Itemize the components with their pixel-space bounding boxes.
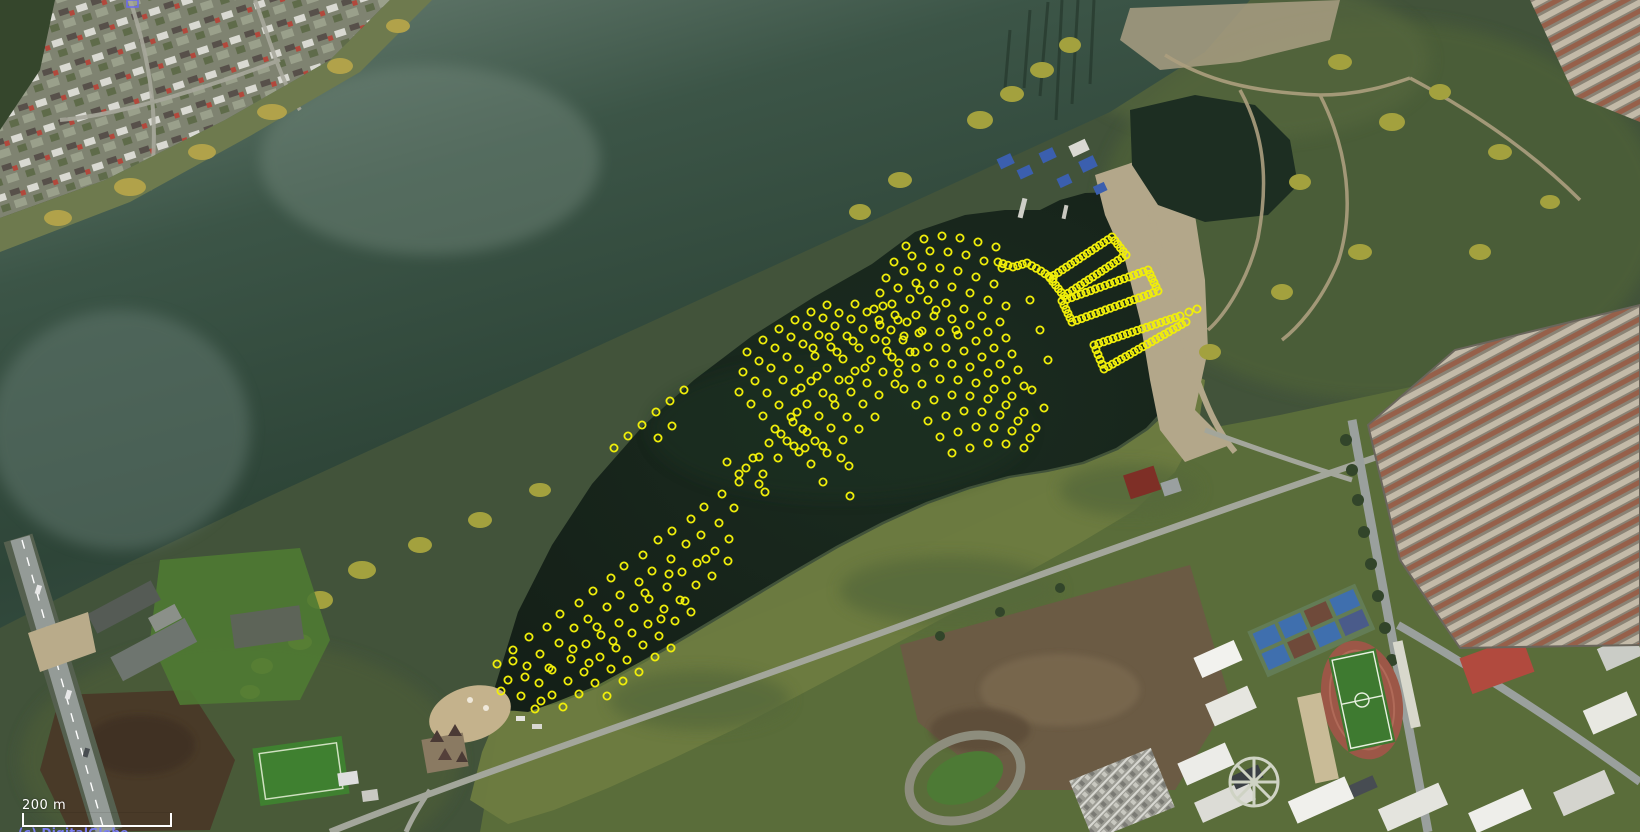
survey-marker [803,322,810,329]
survey-marker [1008,350,1015,357]
survey-marker [930,396,937,403]
survey-marker [755,480,762,487]
survey-marker [882,274,889,281]
survey-marker [972,379,979,386]
survey-marker [1026,296,1033,303]
survey-marker [960,305,967,312]
survey-marker [1008,392,1015,399]
survey-marker [569,645,576,652]
survey-marker [593,623,600,630]
survey-marker [948,360,955,367]
survey-marker [700,503,707,510]
survey-marker [667,555,674,562]
survey-marker [759,470,766,477]
survey-marker [635,578,642,585]
survey-marker [920,235,927,242]
survey-marker [861,364,868,371]
survey-marker [771,425,778,432]
survey-marker [555,639,562,646]
survey-marker [942,412,949,419]
survey-marker [504,676,511,683]
survey-marker [948,391,955,398]
survey-marker [1044,356,1051,363]
survey-marker [797,384,804,391]
survey-marker [761,488,768,495]
survey-marker [639,551,646,558]
survey-marker [725,535,732,542]
survey-marker [972,273,979,280]
survey-marker [936,264,943,271]
survey-marker [966,321,973,328]
survey-marker [584,615,591,622]
survey-marker [638,421,645,428]
survey-marker [612,644,619,651]
survey-marker [984,296,991,303]
survey-marker [954,267,961,274]
survey-marker [807,308,814,315]
survey-marker [984,395,991,402]
survey-marker [948,449,955,456]
survey-marker [687,515,694,522]
survey-marker [996,411,1003,418]
survey-marker [833,348,840,355]
survey-marker [623,656,630,663]
survey-marker [775,401,782,408]
survey-marker [839,355,846,362]
survey-marker [936,328,943,335]
survey-marker [924,296,931,303]
survey-marker [888,300,895,307]
survey-marker [936,375,943,382]
survey-marker [702,555,709,562]
survey-marker [906,295,913,302]
survey-marker [630,604,637,611]
survey-marker [1020,444,1027,451]
survey-marker [819,389,826,396]
survey-marker [535,679,542,686]
survey-marker [615,619,622,626]
survey-marker [845,376,852,383]
survey-marker [693,559,700,566]
survey-marker [867,356,874,363]
survey-marker [620,562,627,569]
survey-marker [978,408,985,415]
survey-marker [1036,326,1043,333]
survey-marker [823,301,830,308]
survey-marker [813,372,820,379]
survey-marker [723,458,730,465]
survey-marker [876,321,883,328]
map-attribution: (c) DigitalGlobe [18,826,129,832]
survey-marker [906,348,913,355]
survey-marker [624,432,631,439]
survey-marker [641,589,648,596]
survey-marker [682,540,689,547]
survey-marker [900,267,907,274]
survey-marker [835,309,842,316]
survey-marker [678,568,685,575]
survey-marker [531,705,538,712]
survey-marker [837,454,844,461]
survey-marker [815,331,822,338]
survey-marker [711,547,718,554]
survey-marker [870,305,877,312]
survey-marker [521,673,528,680]
survey-marker [666,397,673,404]
survey-marker [990,385,997,392]
survey-marker [954,428,961,435]
survey-marker [743,348,750,355]
survey-marker [525,633,532,640]
survey-marker [960,347,967,354]
survey-marker [819,442,826,449]
survey-marker [783,353,790,360]
survey-marker [771,344,778,351]
survey-marker [912,364,919,371]
scale-bar: 200 m [22,799,172,827]
survey-marker [900,385,907,392]
survey-marker [791,316,798,323]
survey-marker [564,677,571,684]
survey-marker [763,389,770,396]
survey-marker [1002,376,1009,383]
survey-marker [644,620,651,627]
survey-marker [735,478,742,485]
survey-marker [765,439,772,446]
survey-marker [1002,334,1009,341]
survey-marker [575,599,582,606]
survey-marker [751,377,758,384]
survey-marker [823,364,830,371]
survey-marker [809,344,816,351]
survey-marker [827,424,834,431]
survey-marker [992,243,999,250]
survey-marker [811,352,818,359]
survey-marker [735,388,742,395]
survey-marker [966,363,973,370]
survey-marker [739,368,746,375]
survey-marker [984,439,991,446]
survey-marker [962,251,969,258]
survey-marker [894,369,901,376]
survey-marker [996,360,1003,367]
survey-marker [509,657,516,664]
survey-marker [591,679,598,686]
survey-marker [654,434,661,441]
survey-marker [663,583,670,590]
survey-marker [654,536,661,543]
survey-marker [724,557,731,564]
survey-marker [657,615,664,622]
survey-marker [665,570,672,577]
survey-marker [936,433,943,440]
survey-marker [823,449,830,456]
survey-marker [635,668,642,675]
survey-marker [966,289,973,296]
survey-marker [954,376,961,383]
survey-marker [855,425,862,432]
survey-marker [668,527,675,534]
survey-marker [523,662,530,669]
survey-marker [855,344,862,351]
survey-marker [846,492,853,499]
survey-marker [680,386,687,393]
survey-marker [831,322,838,329]
survey-marker [863,308,870,315]
survey-marker [859,325,866,332]
survey-marker [742,464,749,471]
survey-marker [609,637,616,644]
survey-marker [774,454,781,461]
survey-marker [974,238,981,245]
survey-marker [692,581,699,588]
survey-marker [667,644,674,651]
survey-marker [570,624,577,631]
survey-marker [681,597,688,604]
survey-marker [759,336,766,343]
survey-marker [575,690,582,697]
survey-marker [851,300,858,307]
survey-marker [996,318,1003,325]
survey-marker [871,335,878,342]
survey-marker [912,311,919,318]
survey-marker [668,422,675,429]
survey-marker [1028,386,1035,393]
survey-marker [984,369,991,376]
survey-marker [918,263,925,270]
survey-marker [603,692,610,699]
survey-marker [829,394,836,401]
survey-marker [793,408,800,415]
survey-marker [926,247,933,254]
survey-marker [980,257,987,264]
survey-marker [890,258,897,265]
survey-marker [687,608,694,615]
survey-marker [895,359,902,366]
survey-marker [811,437,818,444]
survey-marker [715,519,722,526]
survey-marker [803,400,810,407]
survey-marker [747,400,754,407]
survey-marker [918,380,925,387]
survey-marker [759,412,766,419]
survey-marker [787,333,794,340]
survey-marker [493,660,500,667]
survey-marker [879,368,886,375]
survey-marker [1026,434,1033,441]
survey-marker [548,691,555,698]
survey-marker [735,470,742,477]
survey-marker [616,591,623,598]
survey-marker [801,444,808,451]
survey-marker [660,605,667,612]
survey-marker [1008,427,1015,434]
survey-marker [978,312,985,319]
survey-marker [845,462,852,469]
scale-bar-bracket [22,813,172,827]
survey-marker [1185,308,1192,315]
survey-marker [1020,408,1027,415]
survey-marker [924,343,931,350]
survey-marker [607,574,614,581]
survey-marker [610,444,617,451]
survey-marker [990,424,997,431]
survey-marker [597,631,604,638]
survey-marker [543,623,550,630]
survey-marker [783,437,790,444]
survey-marker [990,280,997,287]
survey-marker [888,353,895,360]
survey-marker [902,242,909,249]
survey-marker [871,413,878,420]
survey-marker [972,423,979,430]
survey-marker [1020,382,1027,389]
survey-marker [956,234,963,241]
survey-marker [887,326,894,333]
survey-marker [718,490,725,497]
survey-marker [1040,404,1047,411]
survey-marker [536,650,543,657]
survey-marker [1002,401,1009,408]
survey-marker [697,531,704,538]
survey-marker [912,279,919,286]
survey-marker [815,412,822,419]
survey-marker [795,365,802,372]
survey-marker [580,668,587,675]
survey-marker [589,587,596,594]
survey-marker [903,318,910,325]
survey-marker [517,692,524,699]
survey-marker [916,286,923,293]
survey-marker [730,504,737,511]
survey-marker [930,359,937,366]
survey-marker [894,284,901,291]
survey-marker [849,337,856,344]
survey-marker [607,665,614,672]
survey-marker [972,337,979,344]
survey-marker [948,315,955,322]
survey-marker [908,252,915,259]
survey-marker [876,289,883,296]
survey-marker [944,248,951,255]
survey-marker [619,677,626,684]
survey-marker [648,567,655,574]
survey-marker [984,328,991,335]
survey-marker [938,232,945,239]
scale-bar-label: 200 m [22,799,172,812]
survey-marker [990,344,997,351]
survey-marker [775,325,782,332]
survey-marker [942,344,949,351]
survey-marker [603,603,610,610]
survey-marker [843,413,850,420]
survey-marker [875,391,882,398]
survey-marker [559,703,566,710]
survey-marker [596,653,603,660]
survey-marker [891,380,898,387]
survey-marker [966,392,973,399]
survey-marker [960,407,967,414]
survey-marker [567,655,574,662]
survey-marker [819,478,826,485]
survey-marker [509,646,516,653]
survey-marker [585,659,592,666]
survey-marker [825,333,832,340]
survey-marker [879,302,886,309]
survey-marker [639,641,646,648]
survey-marker [671,617,678,624]
survey-marker [1032,424,1039,431]
survey-marker [652,408,659,415]
survey-marker [1002,440,1009,447]
survey-markers-layer [0,0,1640,832]
survey-marker [966,444,973,451]
survey-marker [799,340,806,347]
survey-marker [948,283,955,290]
survey-marker [835,376,842,383]
survey-marker [1002,302,1009,309]
survey-marker [882,337,889,344]
survey-marker [1014,417,1021,424]
survey-marker [628,629,635,636]
survey-marker [807,460,814,467]
survey-marker [847,388,854,395]
survey-marker [859,400,866,407]
survey-marker [556,610,563,617]
survey-marker [708,572,715,579]
survey-marker [1193,305,1200,312]
survey-marker [831,401,838,408]
survey-marker [497,687,504,694]
survey-marker [930,280,937,287]
survey-marker [912,401,919,408]
survey-marker [851,367,858,374]
survey-marker [651,653,658,660]
survey-marker [655,632,662,639]
survey-marker [537,697,544,704]
survey-marker [924,417,931,424]
survey-marker [779,376,786,383]
survey-marker [819,314,826,321]
survey-marker [847,315,854,322]
survey-marker [839,436,846,443]
survey-marker [978,353,985,360]
survey-marker [582,640,589,647]
survey-marker [755,357,762,364]
survey-marker [767,364,774,371]
map-canvas[interactable]: 200 m (c) DigitalGlobe [0,0,1640,832]
survey-marker [863,379,870,386]
survey-marker [1014,366,1021,373]
survey-marker [942,299,949,306]
